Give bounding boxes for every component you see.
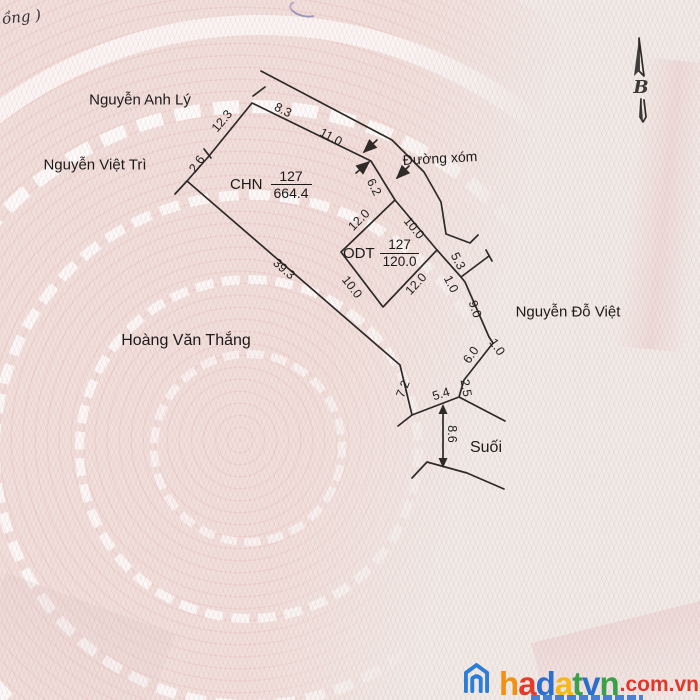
house-icon xyxy=(461,655,499,699)
neighbor-label-top: Nguyễn Anh Lý xyxy=(89,92,191,109)
stream-label: Suối xyxy=(470,439,502,457)
leader-arrow xyxy=(364,140,377,152)
parcel-number-area: 127 120.0 xyxy=(380,237,420,269)
neighbor-label-right: Nguyễn Đỗ Việt xyxy=(516,304,621,321)
watermark-tagline xyxy=(531,695,643,700)
parcel-chn-label: CHN 127 664.4 xyxy=(230,168,312,201)
road-end-tick xyxy=(253,87,265,96)
certificate-page: ồng ) B Nguyễn Anh Lý Nguyễn Việt Trì Ho… xyxy=(0,0,700,700)
parcel-number-area: 127 664.4 xyxy=(271,168,312,201)
spur-tick xyxy=(486,250,492,261)
stream-bank-line xyxy=(412,462,504,489)
watermark-suffix: .com.vn xyxy=(620,673,699,697)
north-label: B xyxy=(629,77,653,98)
boundary-tail xyxy=(175,181,187,194)
dim-2-5: 2.5 xyxy=(458,378,475,398)
land-use-code: ODT xyxy=(343,245,375,262)
neighbour-boundary xyxy=(459,397,505,421)
boundary-tail xyxy=(398,415,412,426)
leader-arrow xyxy=(356,162,369,173)
neighbor-label-left: Nguyễn Việt Trì xyxy=(43,157,146,174)
arrowhead-icon xyxy=(439,404,448,414)
neighbor-label-bottom-left: Hoàng Văn Thắng xyxy=(121,332,251,350)
watermark: hadatvn .com.vn xyxy=(461,649,699,699)
parcel-odt-label: ODT 127 120.0 xyxy=(343,237,419,269)
dim-8-6: 8.6 xyxy=(445,425,459,442)
land-use-code: CHN xyxy=(230,176,263,193)
north-arrow-icon xyxy=(639,38,644,76)
north-arrow-icon xyxy=(634,38,639,76)
